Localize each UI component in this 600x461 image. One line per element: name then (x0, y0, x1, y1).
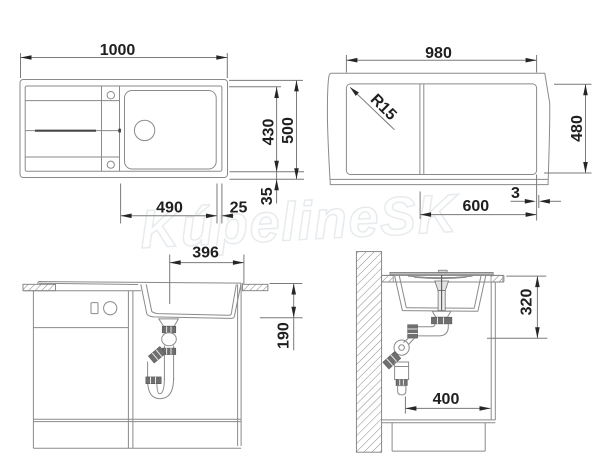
svg-text:480: 480 (569, 115, 586, 142)
svg-text:320: 320 (518, 289, 535, 316)
svg-text:1000: 1000 (100, 42, 136, 59)
svg-text:396: 396 (192, 244, 219, 261)
svg-text:3: 3 (511, 185, 520, 202)
svg-text:25: 25 (230, 199, 248, 216)
svg-text:600: 600 (462, 198, 489, 215)
svg-text:35: 35 (259, 187, 276, 205)
svg-text:490: 490 (156, 199, 183, 216)
svg-text:980: 980 (425, 45, 452, 62)
svg-text:190: 190 (275, 322, 292, 349)
svg-text:500: 500 (280, 117, 297, 144)
svg-text:430: 430 (261, 119, 278, 146)
svg-text:400: 400 (433, 391, 460, 408)
